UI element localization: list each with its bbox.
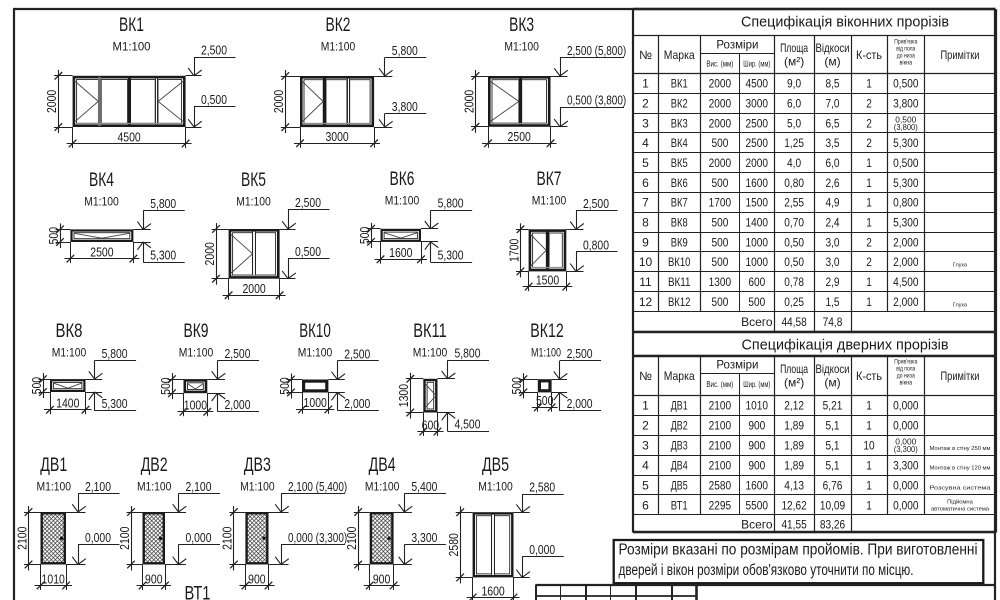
svg-text:0,500: 0,500	[893, 156, 919, 170]
svg-text:900: 900	[748, 458, 765, 472]
svg-text:2,4: 2,4	[825, 216, 839, 230]
svg-text:5,300: 5,300	[893, 216, 919, 230]
svg-text:2,000: 2,000	[893, 295, 919, 309]
svg-text:3,0: 3,0	[825, 235, 839, 249]
svg-text:0,500: 0,500	[295, 244, 321, 259]
svg-text:1300: 1300	[709, 275, 732, 289]
svg-text:0,78: 0,78	[784, 275, 804, 289]
svg-text:1: 1	[866, 176, 872, 190]
svg-text:від пола: від пола	[896, 45, 915, 53]
svg-text:3000: 3000	[325, 129, 348, 144]
svg-text:Специфікація віконних проріз: Специфікація віконних прорізів	[741, 15, 949, 31]
svg-text:8: 8	[642, 216, 649, 230]
svg-text:5,1: 5,1	[825, 439, 839, 453]
svg-text:4500: 4500	[117, 129, 140, 144]
svg-text:(м): (м)	[824, 55, 840, 69]
svg-text:4: 4	[642, 458, 649, 472]
svg-text:5,300: 5,300	[438, 248, 464, 263]
svg-text:6,0: 6,0	[787, 97, 801, 111]
svg-text:2,12: 2,12	[784, 399, 804, 413]
svg-text:6,5: 6,5	[825, 116, 839, 130]
svg-text:12: 12	[639, 295, 653, 309]
svg-text:ВК4: ВК4	[89, 169, 114, 191]
svg-text:500: 500	[711, 136, 728, 150]
svg-text:500: 500	[711, 295, 728, 309]
svg-text:Відкоси: Відкоси	[816, 362, 850, 376]
svg-text:Прив'язка: Прив'язка	[894, 39, 917, 46]
svg-text:1: 1	[866, 196, 872, 210]
svg-text:0,80: 0,80	[784, 176, 804, 190]
svg-text:Площа: Площа	[780, 41, 808, 55]
svg-text:5500: 5500	[746, 498, 769, 512]
svg-text:2: 2	[866, 116, 872, 130]
svg-text:ВК2: ВК2	[326, 14, 351, 36]
svg-text:2: 2	[866, 136, 872, 150]
svg-text:4,500: 4,500	[893, 275, 919, 289]
svg-text:ВК3: ВК3	[509, 14, 534, 36]
svg-text:1000: 1000	[304, 395, 327, 410]
svg-text:ВК8: ВК8	[56, 320, 83, 342]
svg-text:ВК4: ВК4	[671, 136, 688, 150]
svg-text:ВК8: ВК8	[671, 216, 688, 230]
svg-text:ДВ2: ДВ2	[671, 419, 688, 433]
svg-text:5: 5	[642, 156, 649, 170]
svg-text:№: №	[639, 369, 652, 383]
svg-text:№: №	[639, 48, 652, 62]
svg-text:2100: 2100	[117, 527, 132, 550]
svg-text:до низа: до низа	[897, 53, 915, 60]
svg-text:ВК9: ВК9	[671, 235, 688, 249]
svg-text:М1:100: М1:100	[531, 348, 561, 360]
svg-text:5,800: 5,800	[392, 43, 418, 58]
svg-text:ДВ5: ДВ5	[482, 454, 509, 476]
svg-text:12,62: 12,62	[781, 498, 807, 512]
svg-text:ВК5: ВК5	[241, 169, 266, 191]
svg-text:2500: 2500	[746, 116, 769, 130]
svg-text:4,0: 4,0	[787, 156, 801, 170]
svg-text:0,500: 0,500	[201, 92, 227, 107]
svg-text:0,000: 0,000	[893, 399, 919, 413]
svg-text:1300: 1300	[396, 384, 411, 407]
svg-text:2100: 2100	[220, 527, 235, 550]
svg-text:5,300: 5,300	[893, 176, 919, 190]
svg-text:0,50: 0,50	[784, 255, 804, 269]
svg-text:2000: 2000	[271, 90, 286, 113]
svg-text:ВТ1: ВТ1	[671, 498, 688, 512]
svg-text:2,000: 2,000	[893, 235, 919, 249]
svg-text:1: 1	[866, 77, 872, 91]
svg-text:2000: 2000	[709, 97, 732, 111]
svg-text:(м): (м)	[824, 376, 840, 390]
svg-text:(3,300): (3,300)	[894, 445, 918, 454]
svg-text:ВК12: ВК12	[530, 320, 564, 342]
svg-text:1: 1	[866, 458, 872, 472]
svg-text:10: 10	[639, 255, 653, 269]
svg-text:ВК1: ВК1	[671, 77, 688, 91]
svg-text:6: 6	[642, 176, 649, 190]
svg-text:ВК9: ВК9	[184, 320, 209, 342]
svg-text:500: 500	[29, 377, 44, 395]
svg-text:ВК12: ВК12	[668, 295, 691, 309]
svg-text:3: 3	[642, 116, 649, 130]
svg-text:600: 600	[748, 275, 765, 289]
svg-text:41,55: 41,55	[781, 518, 807, 532]
svg-text:500: 500	[158, 377, 173, 395]
svg-text:900: 900	[748, 419, 765, 433]
svg-text:2000: 2000	[461, 90, 476, 113]
svg-text:2500: 2500	[90, 244, 113, 259]
svg-text:1: 1	[866, 478, 872, 492]
svg-text:К-сть: К-сть	[856, 48, 882, 62]
svg-text:М1:100: М1:100	[52, 348, 87, 360]
svg-text:5,400: 5,400	[411, 479, 437, 494]
svg-text:2500: 2500	[746, 136, 769, 150]
svg-text:М1:100: М1:100	[365, 482, 400, 494]
svg-text:2000: 2000	[202, 242, 217, 265]
svg-text:М1:100: М1:100	[478, 482, 513, 494]
svg-text:ВК10: ВК10	[299, 320, 331, 342]
svg-text:(м²): (м²)	[784, 55, 804, 69]
svg-text:Шир. (мм): Шир. (мм)	[743, 59, 770, 68]
svg-text:1: 1	[642, 399, 649, 413]
svg-text:1,5: 1,5	[825, 295, 839, 309]
svg-text:5,300: 5,300	[893, 136, 919, 150]
svg-text:4: 4	[642, 136, 649, 150]
svg-text:ДВ3: ДВ3	[671, 439, 688, 453]
svg-text:М1:100: М1:100	[298, 348, 333, 360]
svg-text:5,800: 5,800	[102, 346, 128, 361]
svg-text:5,800: 5,800	[455, 346, 481, 361]
svg-text:1010: 1010	[42, 571, 65, 586]
svg-text:0,000: 0,000	[186, 530, 212, 545]
svg-text:2100: 2100	[709, 458, 732, 472]
svg-text:1: 1	[866, 295, 872, 309]
svg-text:500: 500	[711, 255, 728, 269]
svg-text:К-сть: К-сть	[856, 369, 882, 383]
svg-text:2100: 2100	[709, 419, 732, 433]
svg-text:Розміри: Розміри	[716, 358, 758, 372]
svg-text:500: 500	[277, 377, 292, 395]
svg-text:Примітки: Примітки	[941, 369, 980, 383]
svg-text:2000: 2000	[746, 156, 769, 170]
svg-text:М1:100: М1:100	[113, 42, 151, 54]
svg-text:1400: 1400	[746, 216, 769, 230]
svg-text:1: 1	[866, 399, 872, 413]
svg-text:9: 9	[642, 235, 649, 249]
svg-text:3,300: 3,300	[893, 458, 919, 472]
svg-text:М1:100: М1:100	[321, 42, 356, 54]
svg-text:3000: 3000	[746, 97, 769, 111]
svg-text:0,800: 0,800	[583, 237, 609, 252]
svg-text:500: 500	[536, 393, 554, 408]
svg-text:1: 1	[866, 216, 872, 230]
svg-text:3,800: 3,800	[893, 97, 919, 111]
svg-text:500: 500	[46, 227, 61, 245]
svg-text:2,580: 2,580	[529, 479, 555, 494]
svg-text:0,000: 0,000	[85, 530, 111, 545]
svg-text:Специфікація дверних прорізі: Специфікація дверних прорізів	[742, 338, 949, 354]
svg-text:2,55: 2,55	[784, 196, 804, 210]
svg-text:900: 900	[145, 571, 163, 586]
svg-text:1: 1	[866, 156, 872, 170]
svg-text:Відкоси: Відкоси	[816, 41, 850, 55]
svg-text:ВК10: ВК10	[668, 255, 691, 269]
svg-text:0,000 (3,300): 0,000 (3,300)	[288, 530, 347, 545]
svg-text:М1:100: М1:100	[84, 197, 119, 209]
svg-text:74,8: 74,8	[823, 315, 843, 329]
svg-text:6,76: 6,76	[823, 478, 843, 492]
svg-text:ДВ1: ДВ1	[671, 399, 688, 413]
svg-text:900: 900	[248, 571, 266, 586]
svg-text:2,500: 2,500	[225, 346, 251, 361]
svg-text:4,9: 4,9	[825, 196, 839, 210]
svg-text:2000: 2000	[242, 281, 265, 296]
svg-text:2,000: 2,000	[225, 397, 251, 412]
svg-text:2,100: 2,100	[186, 479, 212, 494]
svg-text:11: 11	[639, 275, 652, 289]
svg-text:2000: 2000	[709, 116, 732, 130]
svg-text:М1:100: М1:100	[137, 482, 172, 494]
svg-text:від пола: від пола	[896, 365, 915, 373]
svg-text:2580: 2580	[709, 478, 732, 492]
svg-text:1600: 1600	[389, 245, 412, 260]
svg-text:2,500: 2,500	[201, 43, 227, 58]
svg-text:(м²): (м²)	[784, 376, 804, 390]
svg-text:Розміри вказані по розмірам пр: Розміри вказані по розмірам пройомів. Пр…	[619, 541, 978, 558]
svg-text:0,500: 0,500	[893, 77, 919, 91]
svg-text:6: 6	[642, 498, 649, 512]
svg-text:Марка: Марка	[664, 369, 695, 383]
svg-text:2100: 2100	[709, 439, 732, 453]
svg-text:2,500: 2,500	[567, 346, 593, 361]
svg-text:500: 500	[748, 295, 765, 309]
svg-text:Вис. (мм): Вис. (мм)	[706, 380, 733, 389]
svg-text:Глуха: Глуха	[953, 302, 967, 308]
svg-text:2100: 2100	[709, 399, 732, 413]
svg-text:2100: 2100	[344, 527, 359, 550]
svg-text:Вис. (мм): Вис. (мм)	[706, 59, 733, 68]
svg-text:2,9: 2,9	[825, 275, 839, 289]
svg-text:2,500: 2,500	[344, 346, 370, 361]
svg-text:2295: 2295	[709, 498, 732, 512]
svg-text:2580: 2580	[446, 533, 461, 556]
svg-text:3,0: 3,0	[825, 255, 839, 269]
svg-text:Прив'язка: Прив'язка	[894, 359, 917, 366]
svg-text:ДВ2: ДВ2	[141, 454, 168, 476]
svg-text:2,500: 2,500	[295, 195, 321, 210]
svg-text:М1:100: М1:100	[37, 482, 72, 494]
svg-text:Шир. (мм): Шир. (мм)	[743, 380, 770, 389]
svg-text:автоматична система: автоматична система	[931, 507, 990, 513]
svg-text:4500: 4500	[746, 77, 769, 91]
svg-text:0,25: 0,25	[784, 295, 804, 309]
svg-text:0,000: 0,000	[893, 419, 919, 433]
svg-text:2: 2	[642, 419, 649, 433]
svg-text:ВК1: ВК1	[119, 14, 144, 36]
svg-text:Розміри: Розміри	[716, 38, 758, 52]
svg-text:ВК2: ВК2	[671, 97, 688, 111]
svg-text:2,000: 2,000	[567, 396, 593, 411]
svg-text:0,000: 0,000	[893, 498, 919, 512]
svg-text:Площа: Площа	[780, 362, 808, 376]
svg-text:1: 1	[866, 498, 872, 512]
svg-text:2: 2	[866, 255, 872, 269]
svg-text:дверей і вікон розміри обов'яз: дверей і вікон розміри обов'язково уточн…	[619, 562, 914, 579]
svg-text:1,89: 1,89	[784, 419, 804, 433]
svg-text:ВК11: ВК11	[413, 320, 447, 342]
svg-text:1500: 1500	[746, 196, 769, 210]
svg-text:до низа: до низа	[897, 373, 915, 380]
svg-text:2,000: 2,000	[344, 396, 370, 411]
svg-text:2000: 2000	[44, 90, 59, 113]
svg-text:3,5: 3,5	[825, 136, 839, 150]
svg-text:2000: 2000	[709, 77, 732, 91]
svg-text:1010: 1010	[746, 399, 769, 413]
svg-text:2,500: 2,500	[583, 196, 609, 211]
svg-text:500: 500	[357, 227, 372, 245]
svg-text:8,5: 8,5	[825, 77, 839, 91]
svg-text:вікна: вікна	[900, 59, 913, 67]
svg-text:2: 2	[866, 235, 872, 249]
svg-text:1,89: 1,89	[784, 439, 804, 453]
svg-text:6,0: 6,0	[825, 156, 839, 170]
svg-text:ВК5: ВК5	[671, 156, 688, 170]
svg-text:М1:100: М1:100	[236, 197, 271, 209]
svg-text:ДВ4: ДВ4	[369, 454, 396, 476]
svg-text:0,70: 0,70	[784, 216, 804, 230]
svg-text:2000: 2000	[709, 156, 732, 170]
svg-text:ДВ3: ДВ3	[244, 454, 271, 476]
svg-text:600: 600	[422, 417, 440, 432]
svg-text:вікна: вікна	[900, 379, 913, 387]
svg-text:М1:100: М1:100	[413, 348, 448, 360]
svg-text:1600: 1600	[746, 176, 769, 190]
svg-text:9,0: 9,0	[787, 77, 801, 91]
svg-text:900: 900	[373, 571, 391, 586]
svg-text:Монтаж в стіну 250 мм: Монтаж в стіну 250 мм	[930, 446, 991, 452]
svg-text:М1:100: М1:100	[240, 482, 275, 494]
svg-text:5,800: 5,800	[150, 196, 176, 211]
svg-text:ВК3: ВК3	[671, 116, 688, 130]
svg-text:1000: 1000	[746, 235, 769, 249]
svg-text:5,1: 5,1	[825, 458, 839, 472]
svg-text:44,58: 44,58	[781, 315, 807, 329]
svg-text:(3,800): (3,800)	[894, 123, 918, 132]
svg-text:500: 500	[711, 176, 728, 190]
svg-text:5,0: 5,0	[787, 116, 801, 130]
svg-text:2,000: 2,000	[893, 255, 919, 269]
svg-text:5,800: 5,800	[438, 196, 464, 211]
svg-text:0,800: 0,800	[893, 196, 919, 210]
svg-text:2: 2	[642, 97, 649, 111]
svg-text:500: 500	[711, 216, 728, 230]
svg-text:Марка: Марка	[664, 48, 695, 62]
svg-text:500: 500	[711, 235, 728, 249]
svg-text:5: 5	[642, 478, 649, 492]
svg-text:2500: 2500	[508, 129, 531, 144]
svg-text:3: 3	[642, 439, 649, 453]
svg-text:5,21: 5,21	[823, 399, 843, 413]
svg-text:Примітки: Примітки	[941, 48, 980, 62]
svg-text:2,100 (5,400): 2,100 (5,400)	[288, 479, 347, 494]
svg-text:Розсувна система: Розсувна система	[930, 486, 992, 492]
svg-text:М1:100: М1:100	[504, 42, 539, 54]
svg-text:ДВ4: ДВ4	[671, 458, 688, 472]
svg-text:4,13: 4,13	[784, 478, 804, 492]
svg-text:1400: 1400	[56, 396, 79, 411]
svg-text:7: 7	[642, 196, 649, 210]
svg-text:3,800: 3,800	[392, 99, 418, 114]
svg-text:Всего: Всего	[741, 315, 773, 329]
svg-text:500: 500	[509, 377, 524, 395]
svg-text:ВТ1: ВТ1	[185, 583, 211, 600]
svg-text:7,0: 7,0	[825, 97, 839, 111]
svg-text:1000: 1000	[184, 398, 207, 413]
svg-text:1,89: 1,89	[784, 458, 804, 472]
svg-text:2: 2	[866, 97, 872, 111]
svg-text:ВК7: ВК7	[671, 196, 688, 210]
svg-text:5,300: 5,300	[150, 247, 176, 262]
svg-text:ДВ1: ДВ1	[40, 454, 67, 476]
svg-text:3,300: 3,300	[411, 530, 437, 545]
svg-text:5,1: 5,1	[825, 419, 839, 433]
svg-text:М1:100: М1:100	[532, 196, 567, 208]
svg-text:Глуха: Глуха	[953, 263, 967, 269]
svg-text:2,100: 2,100	[85, 479, 111, 494]
svg-text:1: 1	[866, 275, 872, 289]
svg-text:2,6: 2,6	[825, 176, 839, 190]
svg-text:1000: 1000	[746, 255, 769, 269]
svg-text:0,500 (3,800): 0,500 (3,800)	[567, 93, 626, 108]
svg-text:ВК6: ВК6	[671, 176, 688, 190]
svg-text:1600: 1600	[746, 478, 769, 492]
svg-text:1: 1	[866, 419, 872, 433]
svg-text:4,500: 4,500	[455, 417, 481, 432]
svg-text:М1:100: М1:100	[179, 348, 214, 360]
svg-text:ВК11: ВК11	[668, 275, 691, 289]
svg-text:ВК6: ВК6	[390, 168, 415, 190]
svg-text:1700: 1700	[506, 239, 521, 262]
svg-text:1: 1	[642, 77, 649, 91]
svg-text:83,26: 83,26	[820, 518, 846, 532]
svg-text:Монтаж в стіну 120 мм: Монтаж в стіну 120 мм	[930, 466, 991, 472]
svg-text:0,000: 0,000	[529, 542, 555, 557]
svg-text:Всего: Всего	[741, 518, 773, 532]
svg-text:1700: 1700	[709, 196, 732, 210]
svg-text:2100: 2100	[14, 527, 29, 550]
svg-text:10: 10	[863, 439, 875, 453]
svg-text:900: 900	[748, 439, 765, 453]
svg-text:ДВ5: ДВ5	[671, 478, 688, 492]
svg-text:1600: 1600	[481, 583, 504, 598]
svg-text:0,50: 0,50	[784, 235, 804, 249]
svg-text:ВК7: ВК7	[537, 168, 562, 190]
svg-text:5,300: 5,300	[102, 396, 128, 411]
svg-text:Підйомна: Підйомна	[947, 499, 973, 506]
svg-text:0,000: 0,000	[893, 478, 919, 492]
svg-text:10,09: 10,09	[820, 498, 846, 512]
svg-text:1,25: 1,25	[784, 136, 804, 150]
svg-text:1500: 1500	[536, 272, 559, 287]
svg-text:2,500 (5,800): 2,500 (5,800)	[567, 43, 626, 58]
svg-text:М1:100: М1:100	[385, 196, 420, 208]
